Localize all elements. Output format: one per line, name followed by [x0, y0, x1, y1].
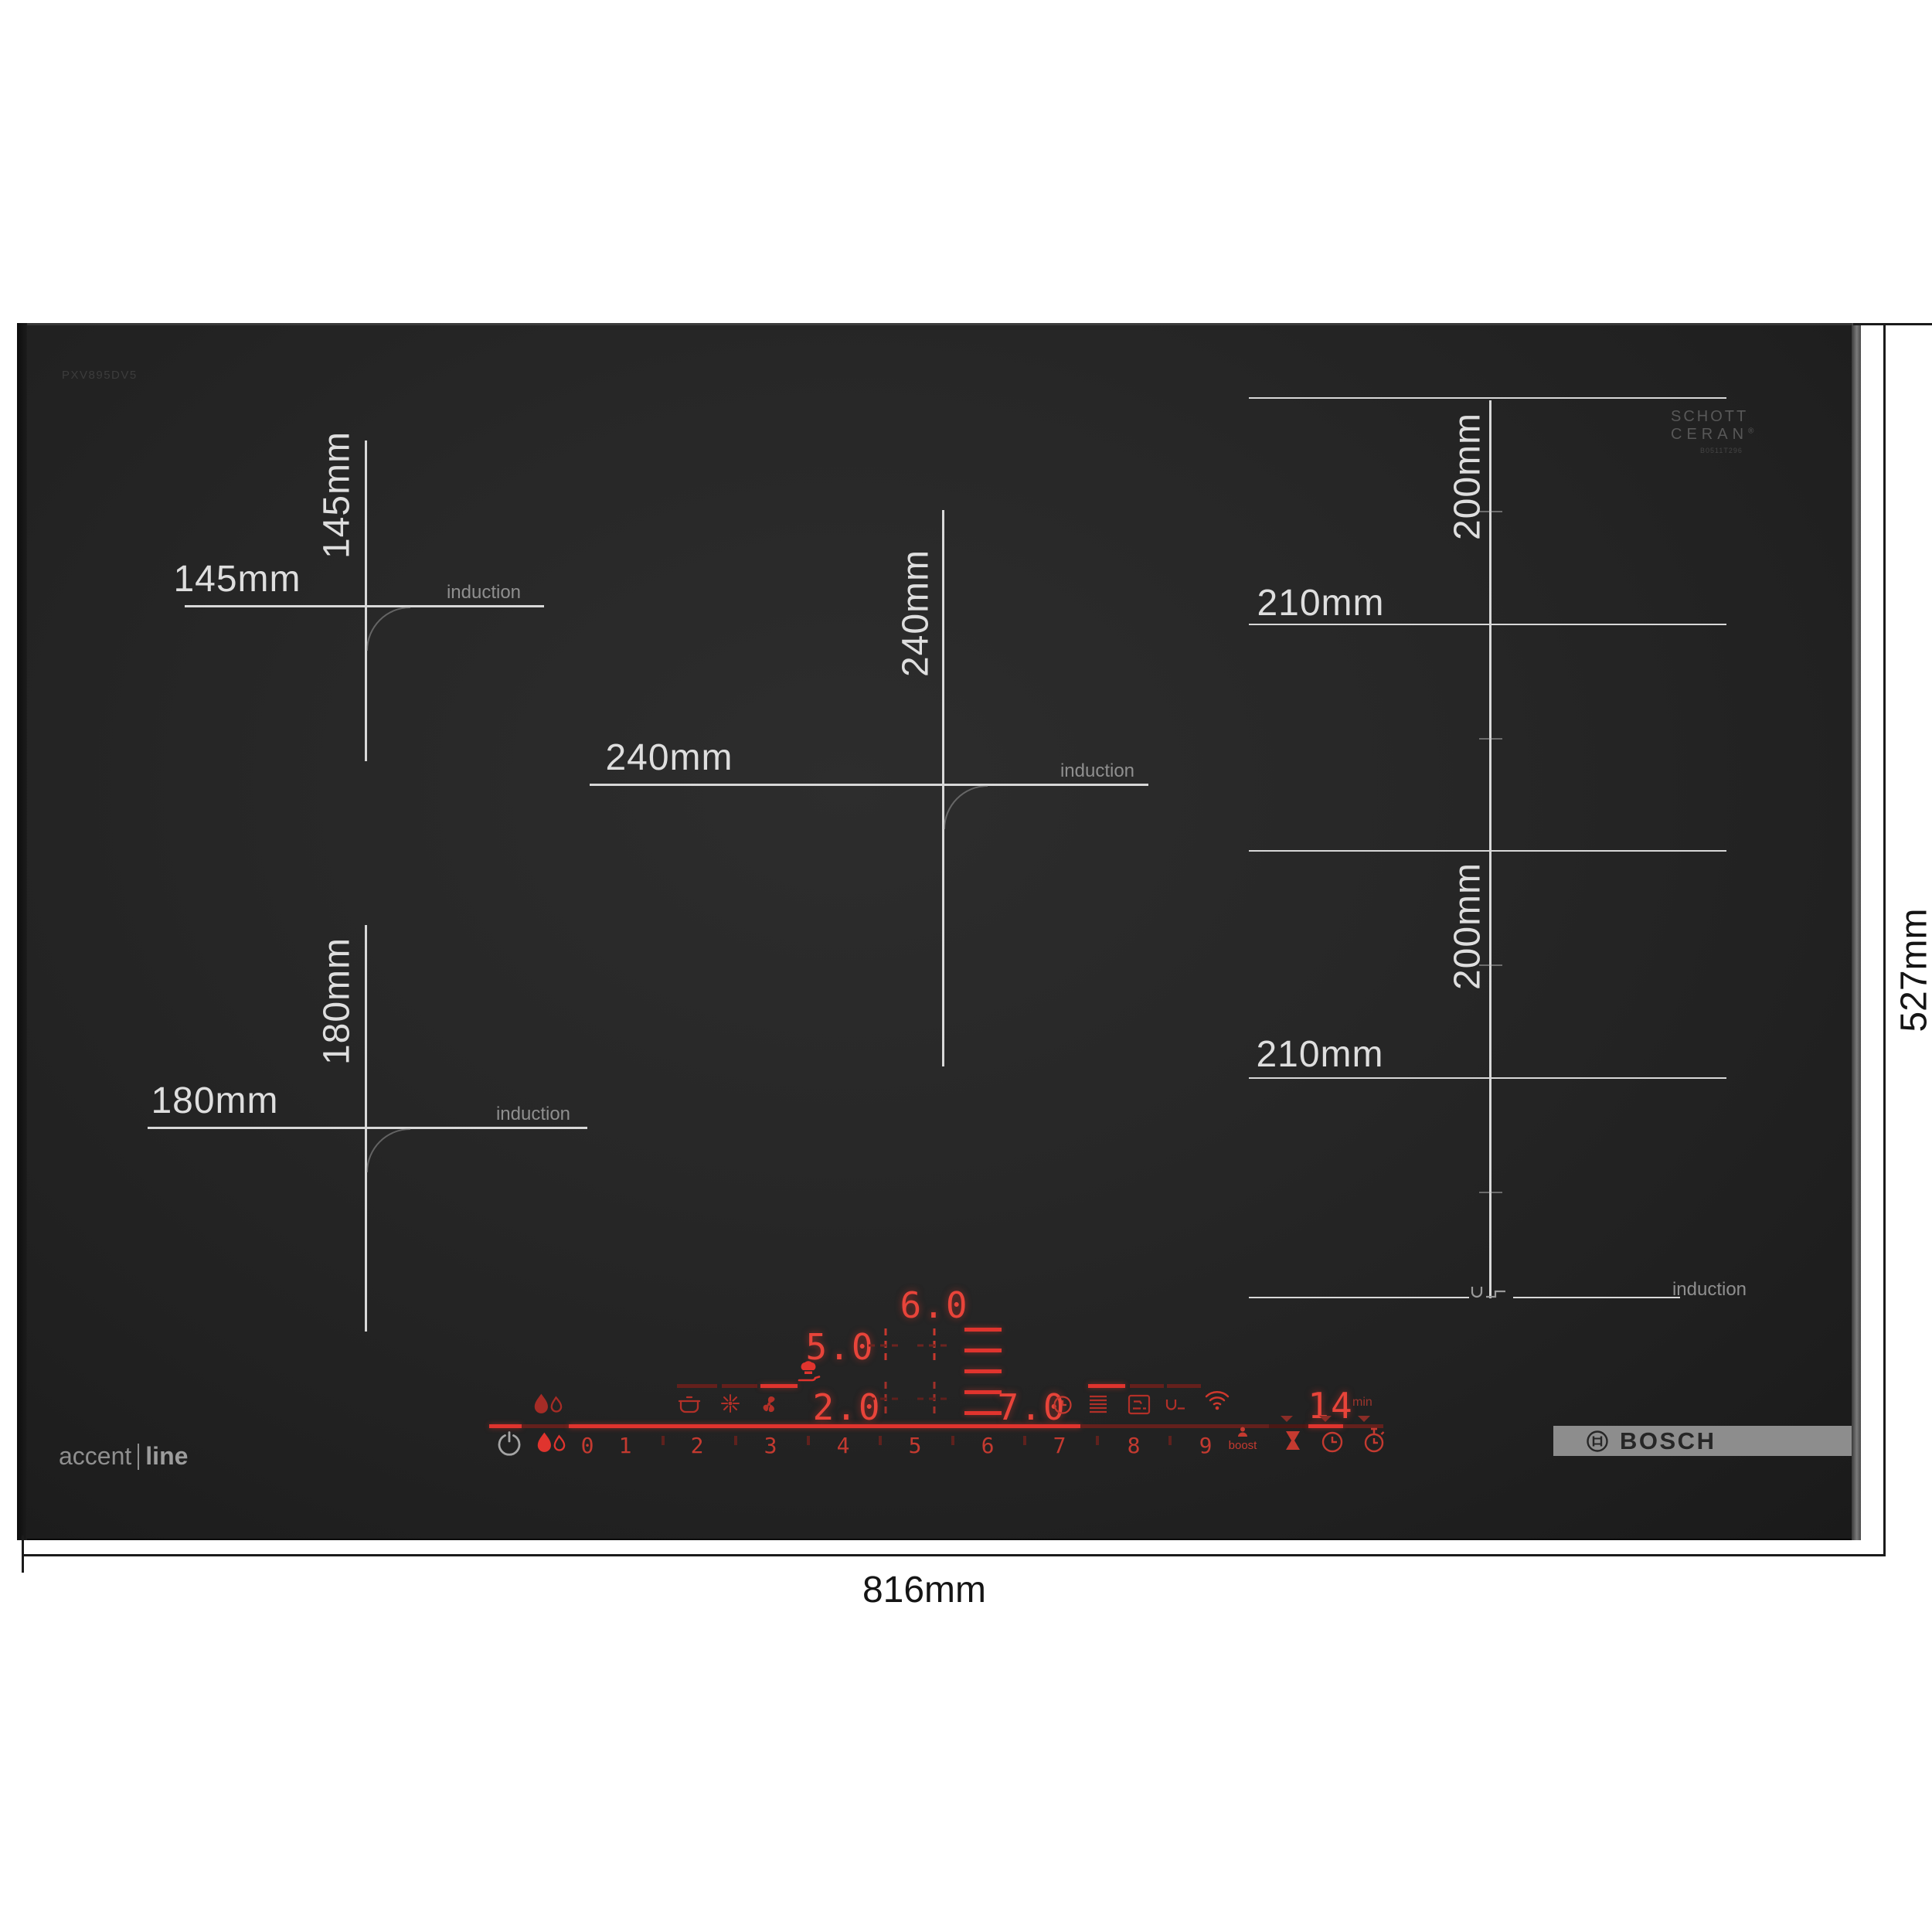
zone-front-left-width-label: 180mm	[130, 1080, 300, 1122]
zone-position-cross-icon	[867, 1380, 904, 1417]
slider-line-left-segment	[489, 1424, 522, 1428]
boost-label: boost	[1219, 1439, 1266, 1452]
schott-line2: CERAN®	[1671, 426, 1758, 444]
flex-tick-1	[1479, 511, 1502, 512]
eggtimer-icon	[1284, 1430, 1301, 1451]
slider-tick	[1023, 1436, 1026, 1445]
fry-sensor-icon	[794, 1360, 822, 1386]
boost-person-icon	[1236, 1427, 1249, 1437]
flex-zone-icon	[1165, 1396, 1186, 1413]
slider-number-8: 8	[1117, 1433, 1151, 1458]
zone-center-height-label: 240mm	[895, 532, 937, 695]
function-bar-active	[1088, 1384, 1125, 1388]
zone-center-hline	[590, 784, 1148, 786]
hob-right-edge	[1852, 323, 1861, 1540]
wifi-icon	[1204, 1388, 1230, 1411]
function-bar-dim	[1130, 1384, 1164, 1388]
height-dimension-top-tick	[1853, 323, 1932, 325]
zone-center-vline	[942, 510, 944, 1066]
flex-ladder-bar	[964, 1390, 1002, 1394]
slider-tick	[734, 1436, 737, 1445]
function-bar-dim	[722, 1384, 757, 1388]
chevron-down-icon	[1319, 1416, 1332, 1422]
flex-back-height-label: 200mm	[1447, 396, 1489, 558]
zone-back-left-width-label: 145mm	[152, 558, 322, 600]
fan-icon	[758, 1393, 780, 1415]
flex-tick-2	[1479, 738, 1502, 740]
height-dimension-line	[1883, 323, 1886, 1556]
slider-tick	[1168, 1436, 1172, 1445]
glass-serial: B0511T296	[1700, 447, 1743, 454]
flex-zone-glass-icon	[1468, 1279, 1509, 1302]
slider-tick	[662, 1436, 665, 1445]
slider-number-7: 7	[1043, 1433, 1077, 1458]
slider-line-timer-segment	[1308, 1424, 1343, 1428]
function-bar-dim	[1167, 1384, 1201, 1388]
zone-position-cross-icon	[916, 1380, 953, 1417]
zone-front-left-height-label: 180mm	[316, 920, 359, 1083]
flex-tick-3	[1479, 964, 1502, 966]
flex-front-width-label: 210mm	[1235, 1033, 1405, 1076]
slider-tick	[1096, 1436, 1099, 1445]
timer-unit-label: min	[1352, 1396, 1372, 1410]
chevron-down-icon	[1281, 1416, 1293, 1422]
flex-front-height-label: 200mm	[1447, 845, 1489, 1008]
bosch-wordmark: BOSCH	[1620, 1427, 1716, 1455]
transfer-zone-icon	[1128, 1394, 1151, 1415]
flex-zone-bottom-line-left	[1249, 1297, 1469, 1298]
accentline-logo: accent line	[59, 1442, 188, 1471]
schott-ceran-logo: SCHOTT CERAN®	[1671, 408, 1758, 444]
slider-number-1: 1	[608, 1433, 642, 1458]
flex-front-center-line	[1249, 1077, 1726, 1079]
width-dimension-left-tick	[22, 1536, 24, 1573]
keep-warm-pot-icon	[678, 1393, 701, 1413]
timer-clock-icon	[1321, 1430, 1344, 1454]
slider-number-5: 5	[898, 1433, 932, 1458]
slider-line-active-segment	[569, 1424, 1080, 1428]
alarm-timer-icon	[1362, 1427, 1386, 1454]
zone-back-left-induction-label: induction	[430, 582, 538, 604]
width-dimension-label: 816mm	[808, 1569, 1040, 1611]
power-icon	[495, 1430, 523, 1458]
accentline-left: accent	[59, 1442, 131, 1471]
flex-ladder-bar	[964, 1369, 1002, 1373]
bosch-logo-bar: BOSCH	[1553, 1426, 1852, 1456]
slider-number-2: 2	[680, 1433, 714, 1458]
slider-line-dim-segment	[522, 1424, 569, 1428]
height-dimension-label: 527mm	[1893, 889, 1932, 1052]
zone-front-left-hline	[148, 1127, 587, 1129]
slider-tick	[807, 1436, 810, 1445]
accentline-divider	[138, 1444, 139, 1470]
hob-left-edge	[17, 323, 27, 1540]
schott-line1: SCHOTT	[1671, 408, 1758, 426]
zone-front-left-vline	[365, 925, 367, 1332]
slider-number-4: 4	[826, 1433, 860, 1458]
zone-position-cross-icon	[867, 1327, 904, 1364]
width-dimension-line	[22, 1554, 1886, 1556]
bosch-symbol-icon	[1586, 1430, 1609, 1453]
function-bar-dim	[677, 1384, 717, 1388]
zone-position-cross-icon	[916, 1327, 953, 1364]
flex-zone-vline	[1489, 400, 1492, 1298]
level-display-back: 6.0	[888, 1284, 981, 1326]
chevron-down-icon	[1358, 1416, 1370, 1422]
slider-tick	[951, 1436, 954, 1445]
zone-back-left-height-label: 145mm	[316, 414, 359, 577]
cleaning-sparkle-icon	[720, 1393, 740, 1413]
move-lines-icon	[1088, 1394, 1108, 1414]
flex-ladder-bar	[964, 1328, 1002, 1332]
flex-ladder-bar	[964, 1349, 1002, 1352]
slider-tick	[879, 1436, 882, 1445]
zone-back-left-vline	[365, 440, 367, 761]
slider-line-faint-segment	[1269, 1424, 1308, 1428]
slider-number-3: 3	[753, 1433, 787, 1458]
accentline-right: line	[145, 1442, 188, 1471]
model-number: PXV895DV5	[62, 369, 138, 382]
flex-ladder-bar	[964, 1411, 1002, 1415]
pan-detection-icon	[534, 1430, 566, 1454]
zone-center-width-label: 240mm	[584, 736, 754, 779]
zone-center-induction-label: induction	[1043, 760, 1151, 782]
pan-detection-icon	[531, 1391, 563, 1416]
timer-clock-small-icon	[1053, 1395, 1073, 1415]
flex-tick-4	[1479, 1192, 1502, 1193]
product-diagram-page: { "branding": { "model": "PXV895DV5", "b…	[0, 0, 1932, 1932]
flex-back-width-label: 210mm	[1236, 582, 1406, 624]
slider-number-9: 9	[1189, 1433, 1223, 1458]
slider-number-6: 6	[971, 1433, 1005, 1458]
function-bar-active	[760, 1384, 798, 1388]
zone-front-left-induction-label: induction	[479, 1104, 587, 1125]
slider-number-0: 0	[570, 1433, 604, 1458]
registered-mark: ®	[1748, 427, 1758, 435]
flex-zone-induction-label: induction	[1655, 1279, 1764, 1301]
